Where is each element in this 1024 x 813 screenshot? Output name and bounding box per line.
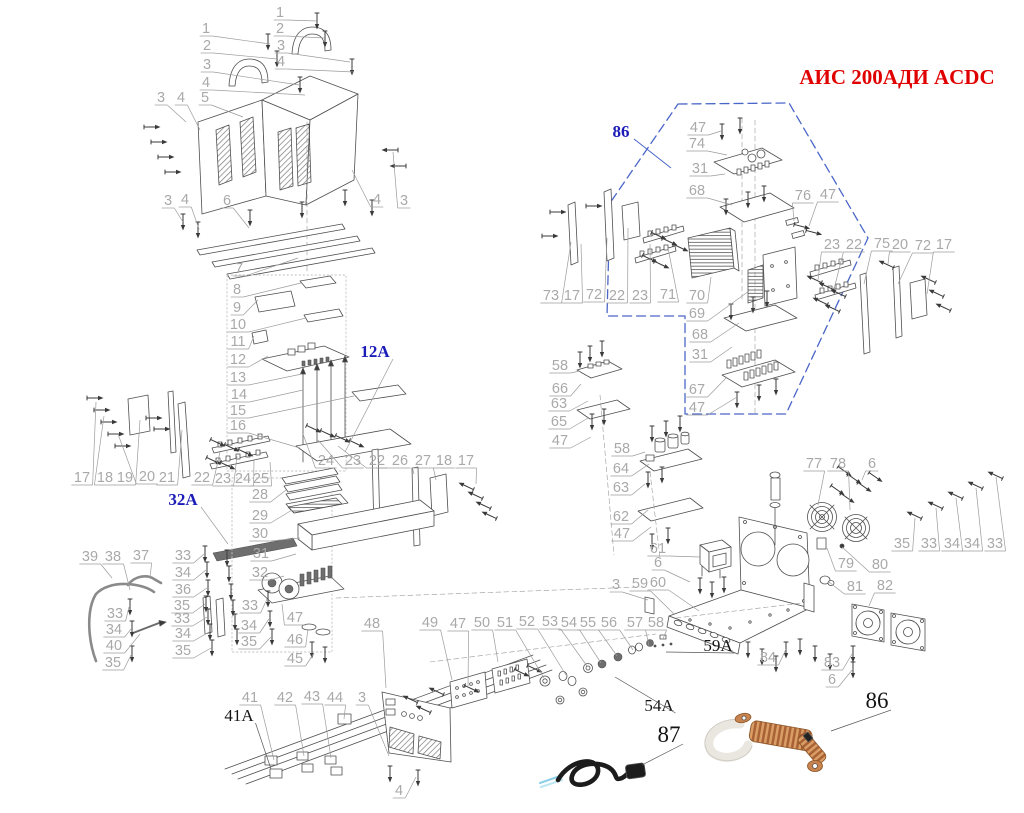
part-callout: 3 [277,38,285,54]
leader-line [864,251,871,284]
leader-line [191,207,199,229]
leader-line [93,402,96,485]
part-callout: 47 [689,400,705,416]
screw-icon [94,408,111,413]
subassembly-label: 12A [360,342,390,361]
screw-icon [306,423,323,434]
screw-icon [678,416,683,433]
leader-line [632,464,649,476]
leader-line [287,53,350,62]
screw-icon [698,578,703,595]
leader-line [306,653,314,666]
screw-icon [108,432,125,437]
leader-line [261,599,267,613]
leader-line [633,452,645,456]
screw-icon [474,499,491,510]
screw-icon [181,214,186,231]
part-callout: 66 [552,381,568,397]
leader-line [167,105,186,122]
leader-line [493,630,498,662]
screw-icon [550,210,567,215]
screw-icon [233,614,238,631]
part-callout: 48 [364,616,380,632]
leader-line [927,252,933,294]
leader-line [271,510,292,523]
leader-line [581,244,583,303]
screw-icon [757,385,762,402]
part-callout: 23 [215,471,231,487]
part-callout: 44 [327,690,343,706]
part-callout: 10 [230,317,246,333]
part-callout: 34 [241,618,257,634]
screw-icon [154,427,171,432]
part-callout: 4 [181,192,189,208]
leader-line [126,607,129,621]
part-callout: 34 [106,622,122,638]
leader-line [913,518,915,551]
leader-line [708,397,737,415]
leader-line [249,374,302,385]
leader-line [233,208,249,228]
leader-line [260,637,271,649]
leader-line [323,704,331,758]
part-callout: 83 [824,655,840,671]
part-callout: 58 [614,441,630,457]
part-callout: 3 [612,577,620,593]
screw-icon [350,59,355,76]
part-callout: 72 [586,287,602,303]
screw-icon [868,471,884,484]
screw-icon [196,222,201,239]
screw-icon [229,584,234,601]
part-callout: 22 [846,237,862,253]
exploded-parts-diagram: 1234512343434643789101112131415161718192… [0,0,1024,813]
part-callout: 33 [107,606,123,622]
part-callout: 38 [105,549,121,565]
diagram-title: АИС 200АДИ ACDC [799,65,994,89]
part-callout: 31 [692,347,708,363]
part-callout: 55 [580,615,596,631]
diagram-canvas: 1234512343434643789101112131415161718192… [0,0,1024,813]
leader-line [538,629,566,675]
screw-icon [946,489,963,500]
part-callout: 36 [175,582,191,598]
part-callout: 30 [252,526,268,542]
leader-line [642,744,683,765]
leader-line [250,390,303,402]
screw-icon [578,352,583,369]
part-callout: 40 [106,638,122,654]
screw-icon [416,770,421,787]
part-callout: 64 [613,461,629,477]
part-callout: 67 [689,382,705,398]
part-callout: 22 [369,453,385,469]
part-callout: 23 [824,237,840,253]
leader-line [393,152,398,208]
leader-line [708,277,711,303]
leader-line [571,384,581,396]
subassembly-label: 86 [613,122,630,141]
part-callout: 18 [436,453,452,469]
part-callout: 9 [233,300,241,316]
part-callout: 13 [230,370,246,386]
leader-line [249,356,268,367]
part-callout: 22 [609,288,625,304]
leader-line [261,705,274,760]
part-callout: 33 [921,536,937,552]
screw-icon [798,639,803,656]
leader-line [633,527,651,541]
screw-icon [268,611,273,628]
part-callout: 47 [552,433,568,449]
part-callout: 60 [650,575,666,591]
leader-line [571,437,591,448]
part-callout: 59 [632,576,648,592]
part-callout: 47 [614,526,630,542]
screw-icon [710,582,715,599]
screw-icon [600,341,605,358]
screw-icon [927,287,944,298]
transformer-61 [700,540,731,578]
screw-icon [588,346,593,363]
part-callout: 47 [450,616,466,632]
part-callout: 33 [175,548,191,564]
part-callout: 39 [82,549,98,565]
part-callout: 1 [276,5,284,21]
part-callout: 33 [174,611,190,627]
part-callout: 17 [74,470,90,486]
leader-line [271,490,286,502]
part-callout: 16 [230,418,246,434]
part-callout: 54 [561,615,577,631]
leader-line [580,630,601,663]
part-callout: 47 [287,610,303,626]
part-callout: 78 [830,456,846,472]
leader-line [632,484,645,495]
leader-line [101,564,112,578]
screw-icon [151,140,168,145]
part-callout: 35 [241,634,257,650]
part-callout: 41 [242,690,258,706]
leader-line [124,655,131,670]
leader-line [571,371,580,373]
part-callout: 27 [415,453,431,469]
part-callout: 21 [159,470,175,486]
part-callout: 35 [105,655,121,671]
screw-icon [934,301,951,312]
part-callout: 20 [892,237,908,253]
part-callout: 45 [287,651,303,667]
part-callout: 75 [874,236,890,252]
leader-line [194,554,204,563]
screw-icon [542,234,559,239]
screw-icon [774,379,779,396]
screw-icon [746,642,751,659]
screw-icon [966,479,983,490]
leader-line [243,300,258,315]
part-callout: 76 [795,188,811,204]
part-callout: 43 [304,689,320,705]
screw-icon [735,392,740,409]
power-cord [540,762,646,787]
part-callout: 72 [915,238,931,254]
part-callout: 49 [422,615,438,631]
handle-icon [229,59,268,86]
leader-line [201,507,228,544]
leader-line [150,563,152,578]
part-callout: 4 [202,75,210,91]
part-callout: 58 [648,615,664,631]
screw-icon [851,646,856,663]
part-callout: 47 [690,120,706,136]
part-callout: 4 [373,192,381,208]
part-callout: 17 [564,288,580,304]
leader-line [249,396,354,418]
screw-icon [165,170,182,175]
part-callout: 53 [542,614,558,630]
leader-line [634,139,671,168]
leader-line [194,632,209,641]
leader-line [708,151,727,155]
leader-line [286,20,317,21]
leader-line [838,669,853,687]
part-callout: 84 [760,650,776,666]
leader-line [827,548,835,571]
part-callout: 6 [868,456,876,472]
leader-line [282,604,284,625]
leader-line [441,630,452,680]
part-callout: 4 [177,90,185,106]
top-cover-assembly [197,27,375,279]
chassis-base [645,517,814,654]
leader-line [869,593,874,606]
part-callout: 77 [806,456,822,472]
screw-icon [266,34,271,51]
leader-line [194,648,211,658]
part-callout: 56 [601,615,617,631]
screw-icon [480,509,497,520]
part-callout: 28 [252,487,268,503]
screw-icon [248,210,253,227]
screw-icon [457,480,474,491]
leader-line [383,631,386,688]
screw-icon [130,621,135,638]
part-callout: 19 [117,470,133,486]
screw-icon [905,509,922,520]
part-callout: 6 [223,193,231,209]
screw-icon [646,472,651,489]
part-callout: 63 [613,480,629,496]
screw-icon [986,469,1003,480]
part-label-black: 86 [866,688,889,713]
part-callout: 82 [877,578,893,594]
screw-icon [926,499,943,510]
inductor-coil-photo [705,712,828,772]
leader-line [664,570,690,582]
part-label-black: 41A [224,706,254,725]
part-callout: 17 [936,237,952,253]
part-callout: 73 [543,288,559,304]
screw-icon [738,118,743,135]
part-callout: 58 [552,358,568,374]
leader-line [711,323,739,342]
leader-line [831,710,891,731]
leader-line [709,131,721,135]
part-callout: 62 [613,509,629,525]
part-callout: 80 [872,557,888,573]
part-callout: 6 [654,555,662,571]
leader-line [711,174,725,176]
screw-icon [666,528,671,545]
part-callout: 17 [458,453,474,469]
leader-line [570,418,588,429]
part-callout: 20 [139,469,155,485]
part-callout: 3 [358,690,366,706]
screw-icon [87,396,104,401]
screw-icon [427,685,444,696]
leader-line [834,252,843,289]
screw-icon [586,204,603,209]
part-label-black: 59A [703,636,733,655]
part-callout: 68 [692,327,708,343]
screw-icon [390,164,407,169]
part-callout: 2 [276,21,284,37]
leader-line [194,570,206,580]
part-callout: 4 [277,54,285,70]
part-callout: 70 [689,288,705,304]
part-callout: 71 [660,287,676,303]
part-callout: 3 [203,57,211,73]
part-callout: 69 [689,306,705,322]
part-callout: 7 [235,261,243,277]
hardware-row [540,635,672,704]
leader-line [212,36,270,44]
leader-line [260,619,269,633]
screw-icon [877,258,894,269]
leader-line [249,318,306,332]
leader-line [187,105,200,130]
screw-icon [794,222,811,231]
screw-icon [144,125,161,130]
part-callout: 33 [987,536,1003,552]
part-callout: 23 [345,453,361,469]
part-callout: 14 [231,387,247,403]
part-callout: 5 [201,90,209,106]
leader-line [898,253,912,284]
part-callout: 24 [235,471,251,487]
screw-icon [382,148,399,153]
leader-line [174,208,183,222]
part-callout: 57 [627,615,643,631]
leader-line [124,564,130,590]
leader-line [287,69,354,72]
bottom-rails [197,224,375,279]
part-callout: 18 [97,470,113,486]
leader-line [843,654,852,670]
leader-line [213,53,277,59]
leader-line [779,649,786,665]
part-callout: 2 [203,38,211,54]
part-callout: 35 [175,643,191,659]
leader-line [561,629,587,666]
part-callout: 32 [252,565,268,581]
leader-line [818,471,825,505]
leader-line [605,238,607,302]
part-callout: 15 [230,403,246,419]
front-panel [382,659,530,762]
part-callout: 3 [157,90,165,106]
part-label-black: 87 [658,722,681,747]
leader-line [809,202,817,226]
part-callout: 11 [230,334,245,350]
leader-line [476,468,477,484]
leader-line [849,471,850,510]
part-callout: 25 [253,471,269,487]
screw-icon [722,577,727,594]
inverter-module-86 [568,103,927,415]
part-callout: 81 [847,579,863,595]
part-label-black: 54A [644,696,674,715]
part-callout: 23 [632,288,648,304]
part-callout: 33 [242,598,258,614]
cooling-fans [852,604,925,651]
part-callout: 26 [392,453,408,469]
part-callout: 31 [253,546,269,562]
screw-icon [320,428,337,439]
part-callout: 68 [689,183,705,199]
part-callout: 42 [277,690,293,706]
part-callout: 3 [164,193,172,209]
part-callout: 47 [820,187,836,203]
part-callout: 63 [551,396,567,412]
leader-line [599,630,617,656]
leader-line [296,705,304,756]
part-callout: 4 [395,783,403,799]
part-callout: 34 [175,565,191,581]
part-callout: 50 [474,615,490,631]
screw-icon [323,647,328,664]
screw-icon [851,662,856,679]
leader-line [306,629,308,647]
leader-line [249,336,254,349]
part-callout: 35 [894,536,910,552]
screw-icon [343,190,348,207]
screw-icon [720,124,725,141]
screw-icon [130,646,135,663]
leader-line [405,777,416,798]
screw-icon [466,489,483,500]
part-callout: 34 [175,626,191,642]
leader-line [193,604,205,613]
leader-line [125,629,131,637]
screw-icon [227,566,232,583]
label-layer: 8612A32A41A54A59A8786 [168,122,891,769]
screw-icon [664,421,669,438]
part-callout: 37 [133,548,149,564]
part-callout: 22 [194,470,210,486]
part-callout: 6 [828,672,836,688]
screw-icon [388,766,393,783]
subassembly-label: 32A [168,490,198,509]
part-callout: 34 [964,536,980,552]
leader-line [888,252,889,264]
screw-icon [650,426,655,443]
part-callout: 8 [233,282,241,298]
leader-line [213,72,299,85]
screw-icon [128,599,133,616]
leader-line [669,556,700,557]
leader-line [829,582,844,594]
